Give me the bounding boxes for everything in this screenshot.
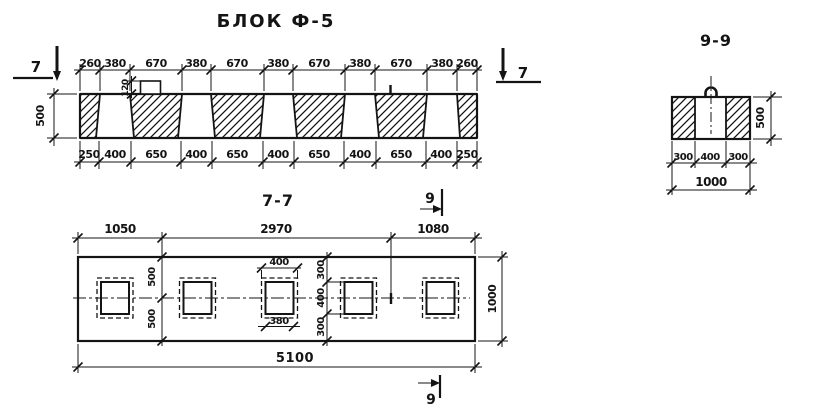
section-mark-9-bottom: 9 bbox=[418, 375, 440, 408]
plan-bottom-dim: 5100 bbox=[72, 344, 482, 373]
dim-label: 670 bbox=[145, 57, 167, 70]
section-arrow-right bbox=[433, 205, 442, 213]
dim-label: 380 bbox=[269, 316, 289, 327]
dim-label: 1080 bbox=[417, 222, 449, 236]
dim-label: 400 bbox=[349, 148, 371, 161]
elevation-segment bbox=[293, 94, 345, 138]
dim-label: 670 bbox=[390, 57, 412, 70]
section-height-dim: 500 bbox=[753, 91, 782, 146]
drawing-sheet: БЛОК Ф-5 120 bbox=[0, 0, 815, 411]
dim-label: 400 bbox=[267, 148, 289, 161]
section-label: 7 bbox=[518, 64, 528, 82]
elevation-bottom-dim-chain: 250 400 650 400 650 400 650 400 650 400 … bbox=[74, 141, 482, 169]
section-hatch-right bbox=[726, 97, 750, 139]
dim-label: 400 bbox=[316, 288, 327, 308]
dim-label: 400 bbox=[185, 148, 207, 161]
section-label: 9 bbox=[425, 191, 435, 207]
dim-label: 1000 bbox=[486, 284, 499, 313]
plan-width-dim: 1000 bbox=[478, 251, 508, 347]
technical-drawing: БЛОК Ф-5 120 bbox=[0, 0, 815, 411]
dim-label: 500 bbox=[147, 309, 158, 329]
dim-label: 380 bbox=[267, 57, 289, 70]
dim-label: 1000 bbox=[695, 175, 727, 189]
section-mark-9-top: 9 bbox=[420, 189, 442, 216]
dim-label: 400 bbox=[269, 257, 289, 268]
section-9-9-view: 9-9 300 400 300 1000 bbox=[666, 31, 782, 195]
dim-label: 300 bbox=[316, 260, 327, 280]
dim-label: 300 bbox=[728, 152, 748, 163]
dim-label: 380 bbox=[104, 57, 126, 70]
elevation-segment bbox=[211, 94, 264, 138]
lifting-loop-elevation bbox=[141, 81, 161, 94]
section-arrow-down bbox=[499, 71, 507, 81]
dim-label: 380 bbox=[349, 57, 371, 70]
section-mark-7-left: 7 bbox=[13, 46, 61, 81]
dim-label: 650 bbox=[145, 148, 167, 161]
dim-label: 400 bbox=[104, 148, 126, 161]
elevation-segment bbox=[375, 94, 427, 138]
section-mark-7-right: 7 bbox=[496, 48, 541, 82]
dim-label: 670 bbox=[226, 57, 248, 70]
dim-label: 650 bbox=[308, 148, 330, 161]
dim-label: 650 bbox=[226, 148, 248, 161]
dim-label: 400 bbox=[430, 148, 452, 161]
plan-view-title: 7-7 bbox=[262, 191, 294, 210]
dim-label: 300 bbox=[316, 317, 327, 337]
elevation-segment bbox=[130, 94, 182, 138]
section-arrow-right bbox=[431, 379, 440, 387]
section-label: 9 bbox=[426, 392, 436, 408]
dim-label: 400 bbox=[700, 152, 720, 163]
dim-label: 380 bbox=[431, 57, 453, 70]
section-arrow-down bbox=[53, 71, 61, 81]
dim-label: 650 bbox=[390, 148, 412, 161]
dim-label: 2970 bbox=[260, 222, 292, 236]
dim-label: 500 bbox=[34, 104, 47, 126]
dim-label: 380 bbox=[185, 57, 207, 70]
dim-label: 260 bbox=[79, 57, 101, 70]
plan-top-dim-chain: 1050 2970 1080 bbox=[72, 222, 482, 254]
dim-label: 500 bbox=[754, 106, 767, 128]
section-label: 7 bbox=[31, 58, 41, 76]
elevation-segment bbox=[80, 94, 100, 138]
dim-label: 300 bbox=[673, 152, 693, 163]
dim-label: 250 bbox=[78, 148, 100, 161]
section-total-dim: 1000 bbox=[666, 175, 757, 195]
dim-label: 5100 bbox=[276, 351, 314, 366]
dim-label: 1050 bbox=[104, 222, 136, 236]
section-hatch-left bbox=[672, 97, 695, 139]
plan-outline bbox=[78, 257, 475, 341]
elevation-view: 120 260 380 670 380 670 380 670 380 670 … bbox=[13, 46, 541, 169]
dim-label: 250 bbox=[456, 148, 478, 161]
dim-label: 260 bbox=[456, 57, 478, 70]
dim-label: 670 bbox=[308, 57, 330, 70]
block-title: БЛОК Ф-5 bbox=[217, 11, 336, 32]
dim-label: 500 bbox=[147, 267, 158, 287]
plan-view: 7-7 1050 2970 1080 500 500 bbox=[72, 189, 508, 408]
elevation-top-dim-chain: 260 380 670 380 670 380 670 380 670 380 … bbox=[74, 57, 482, 91]
section-view-title: 9-9 bbox=[700, 31, 732, 50]
elevation-segment bbox=[457, 94, 477, 138]
elevation-height-dim: 500 bbox=[34, 88, 77, 146]
